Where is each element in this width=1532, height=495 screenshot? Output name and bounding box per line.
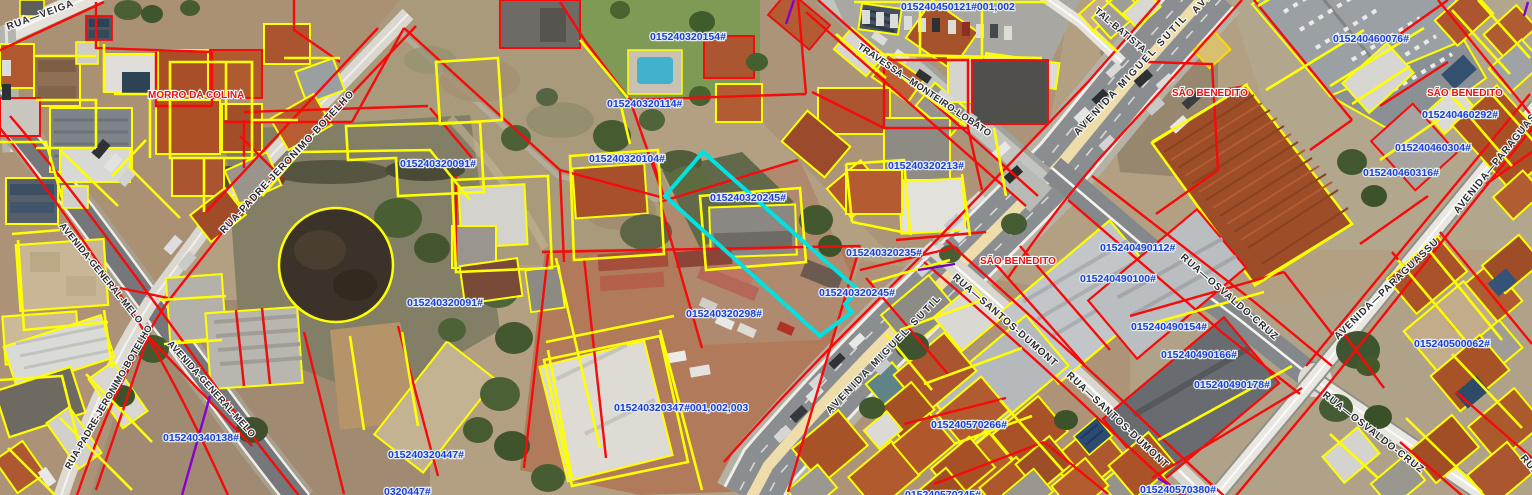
- svg-text:015240490166#: 015240490166#: [1161, 349, 1237, 361]
- svg-text:015240340138#: 015240340138#: [163, 432, 239, 444]
- svg-text:015240500062#: 015240500062#: [1414, 338, 1490, 350]
- svg-text:015240320235#: 015240320235#: [846, 247, 922, 259]
- svg-text:015240320213#: 015240320213#: [888, 160, 964, 172]
- svg-text:015240490154#: 015240490154#: [1131, 321, 1207, 333]
- svg-text:015240320347#001,002,003: 015240320347#001,002,003: [614, 402, 748, 414]
- svg-text:015240450121#001,002: 015240450121#001,002: [901, 1, 1015, 13]
- svg-text:MORRO DA COLINA: MORRO DA COLINA: [148, 90, 244, 101]
- svg-text:015240490178#: 015240490178#: [1194, 379, 1270, 391]
- svg-text:015240320245#: 015240320245#: [710, 192, 786, 204]
- svg-text:015240320447#: 015240320447#: [388, 449, 464, 461]
- svg-text:015240490100#: 015240490100#: [1080, 273, 1156, 285]
- svg-text:015240320091#: 015240320091#: [400, 158, 476, 170]
- svg-text:015240570380#: 015240570380#: [1140, 484, 1216, 495]
- svg-text:015240460316#: 015240460316#: [1363, 167, 1439, 179]
- svg-text:015240320104#: 015240320104#: [589, 153, 665, 165]
- svg-text:015240320154#: 015240320154#: [650, 31, 726, 43]
- svg-text:015240320245#: 015240320245#: [819, 287, 895, 299]
- svg-text:015240460076#: 015240460076#: [1333, 33, 1409, 45]
- svg-text:SÃO BENEDITO: SÃO BENEDITO: [1172, 86, 1248, 99]
- svg-text:015240460292#: 015240460292#: [1422, 109, 1498, 121]
- svg-text:015240320114#: 015240320114#: [607, 98, 682, 110]
- svg-text:015240570245#: 015240570245#: [905, 489, 981, 495]
- svg-text:015240490112#: 015240490112#: [1100, 242, 1175, 254]
- svg-text:015240320091#: 015240320091#: [407, 297, 483, 309]
- svg-text:015240460304#: 015240460304#: [1395, 142, 1471, 154]
- svg-text:SÃO BENEDITO: SÃO BENEDITO: [980, 254, 1056, 267]
- svg-text:015240570266#: 015240570266#: [931, 419, 1007, 431]
- svg-text:015240320298#: 015240320298#: [686, 308, 762, 320]
- svg-text:SÃO BENEDITO: SÃO BENEDITO: [1427, 86, 1503, 99]
- svg-text:0320447#: 0320447#: [384, 486, 431, 495]
